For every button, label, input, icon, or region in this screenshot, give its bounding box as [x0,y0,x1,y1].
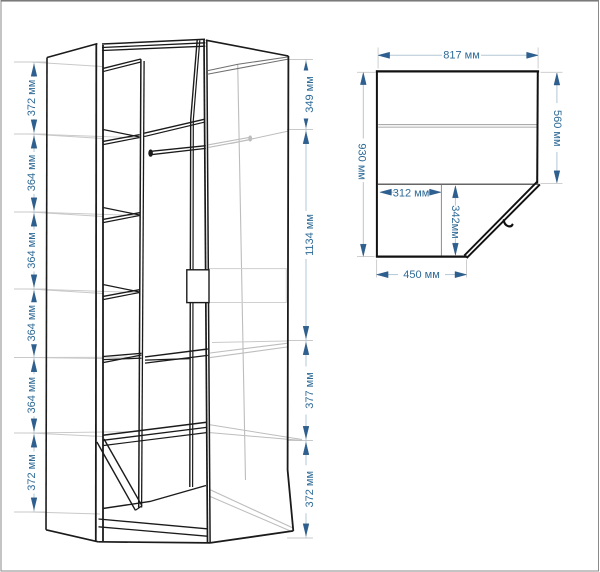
svg-text:372 мм: 372 мм [26,454,38,491]
svg-text:364 мм: 364 мм [26,232,38,269]
svg-text:930 мм: 930 мм [356,143,368,180]
svg-text:450 мм: 450 мм [403,269,440,281]
svg-text:372 мм: 372 мм [304,471,316,508]
svg-text:817 мм: 817 мм [443,50,480,62]
svg-text:372 мм: 372 мм [26,80,38,117]
svg-text:560 мм: 560 мм [551,110,563,147]
svg-text:377 мм: 377 мм [304,372,316,409]
svg-text:312 мм: 312 мм [393,188,430,200]
svg-text:364 мм: 364 мм [26,377,38,414]
svg-text:364 мм: 364 мм [26,155,38,192]
svg-text:1134 мм: 1134 мм [304,214,316,256]
svg-text:364 мм: 364 мм [26,305,38,342]
svg-text:349 мм: 349 мм [304,76,316,113]
svg-text:342мм: 342мм [449,205,461,238]
